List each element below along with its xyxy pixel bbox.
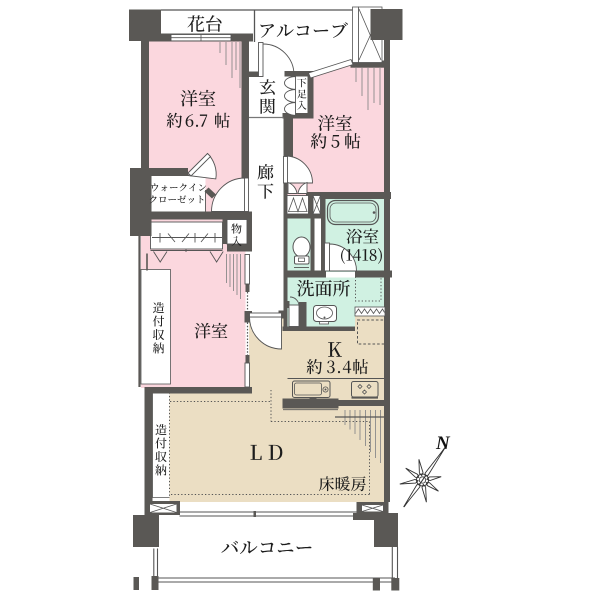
- svg-text:N: N: [435, 433, 451, 454]
